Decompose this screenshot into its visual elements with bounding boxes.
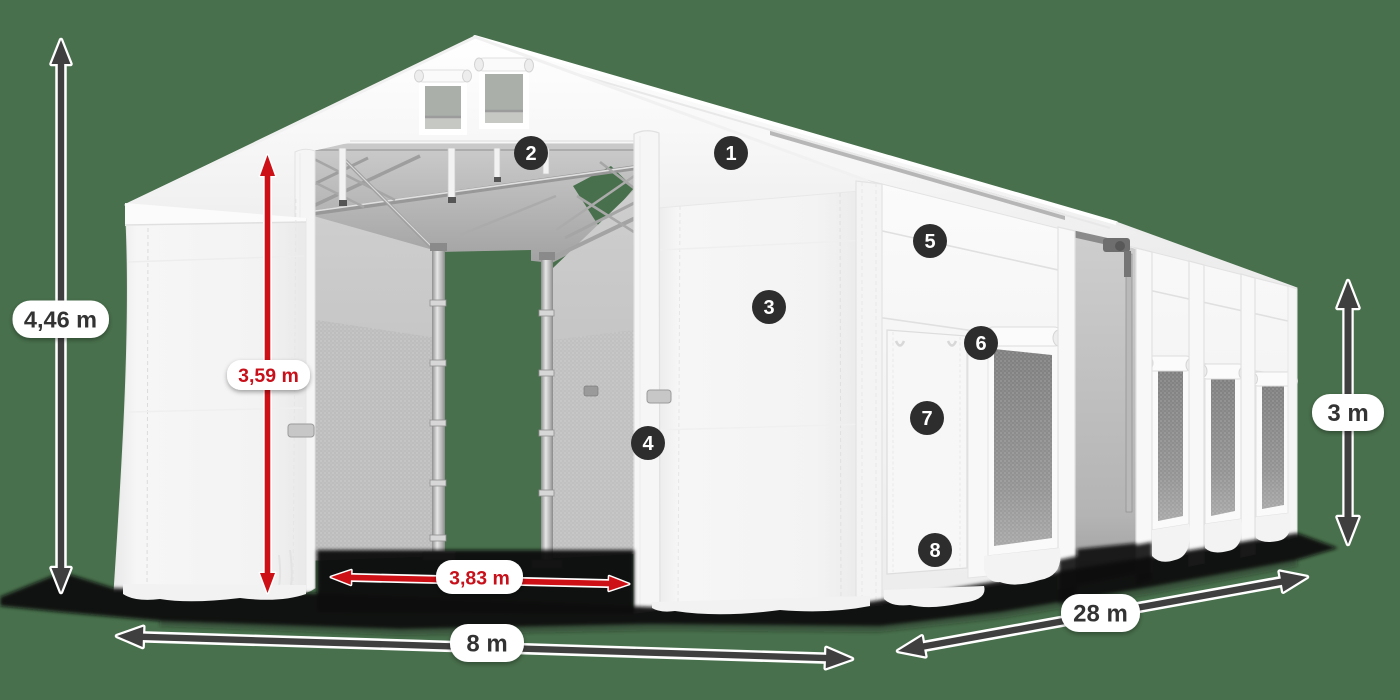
- svg-text:2: 2: [525, 143, 536, 165]
- svg-text:28 m: 28 m: [1073, 601, 1128, 628]
- svg-text:3,83 m: 3,83 m: [449, 568, 510, 590]
- svg-text:6: 6: [975, 333, 986, 355]
- svg-text:3 m: 3 m: [1327, 400, 1368, 427]
- svg-text:8 m: 8 m: [466, 631, 507, 658]
- svg-text:4: 4: [642, 433, 654, 455]
- svg-text:3,59 m: 3,59 m: [238, 365, 299, 387]
- svg-text:3: 3: [763, 297, 774, 319]
- svg-text:1: 1: [725, 143, 736, 165]
- svg-text:8: 8: [929, 540, 940, 562]
- svg-text:7: 7: [921, 408, 932, 430]
- svg-text:5: 5: [924, 231, 935, 253]
- svg-text:4,46 m: 4,46 m: [24, 307, 97, 333]
